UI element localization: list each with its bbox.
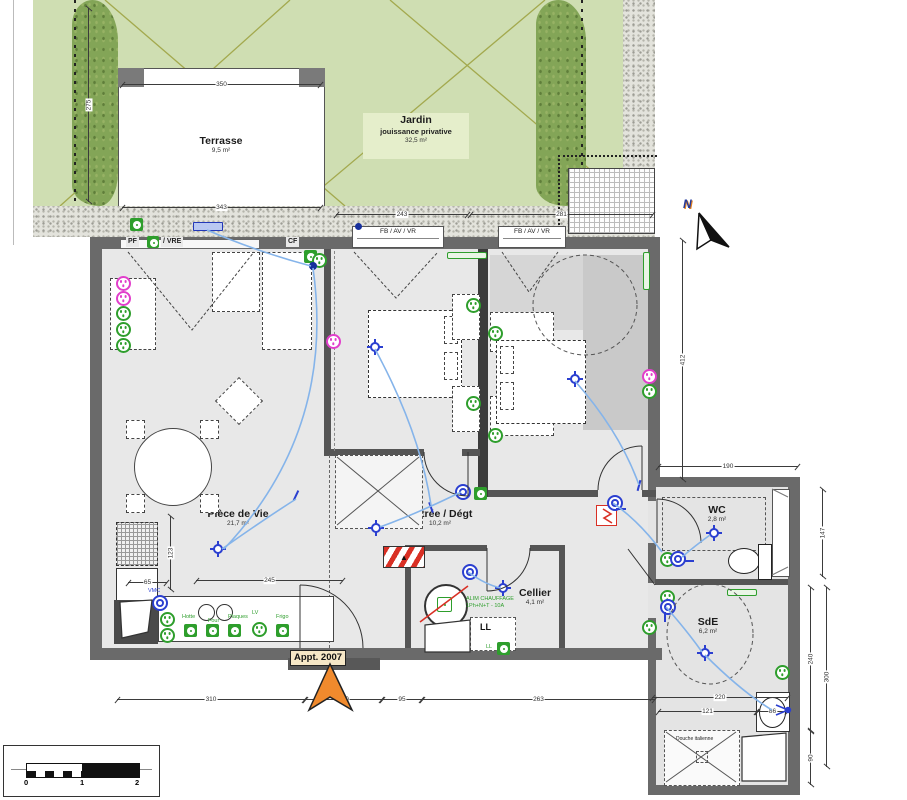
tap-icon — [776, 705, 790, 715]
wc-window-splay — [772, 489, 788, 575]
scale-segment-right — [82, 763, 140, 778]
wiring-arcs — [207, 230, 772, 710]
scale-segment-left — [26, 763, 84, 778]
turning-circles — [533, 255, 753, 684]
scale-bar: 0 1 2 — [3, 745, 160, 797]
scale-2: 2 — [135, 778, 139, 787]
lightning-glyph — [603, 509, 612, 523]
floor-plan: Terrasse 9,5 m² Jardin jouissance privat… — [0, 0, 907, 800]
scale-1: 1 — [80, 778, 84, 787]
location-arrow-icon — [309, 664, 352, 710]
window-swing-lines — [128, 252, 558, 330]
door-leaves — [120, 600, 786, 781]
heater-strike-line — [420, 586, 468, 622]
scale-0: 0 — [24, 778, 28, 787]
overlay-graphics — [0, 0, 907, 800]
